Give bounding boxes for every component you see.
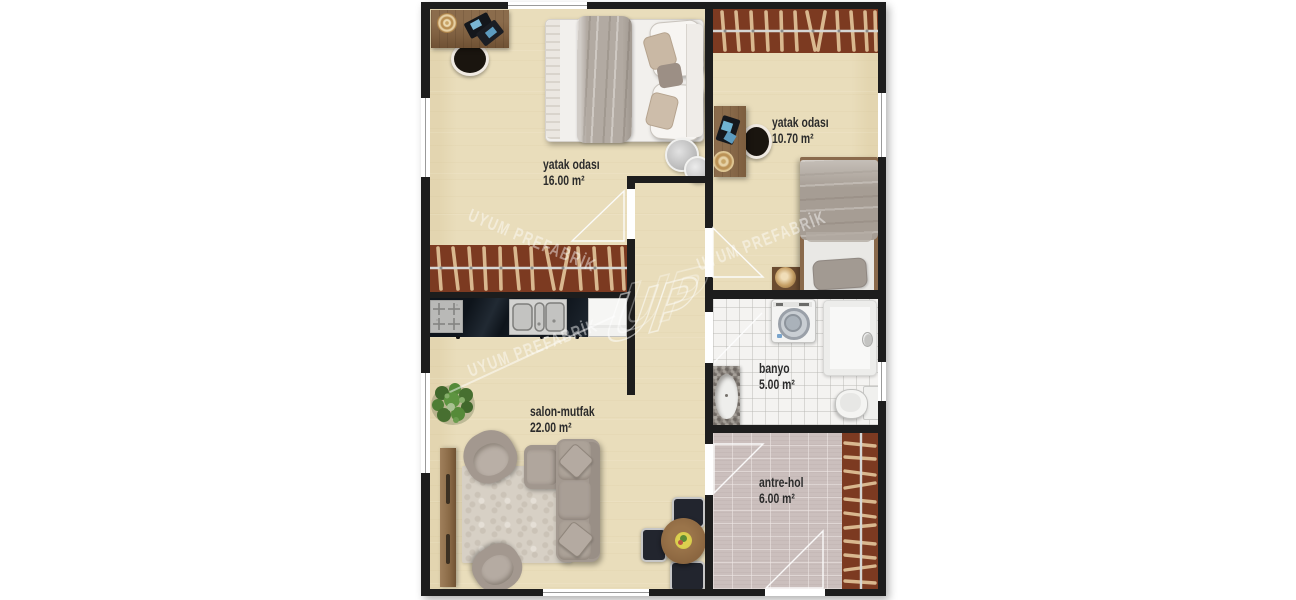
svg-text:UP: UP <box>606 247 720 349</box>
